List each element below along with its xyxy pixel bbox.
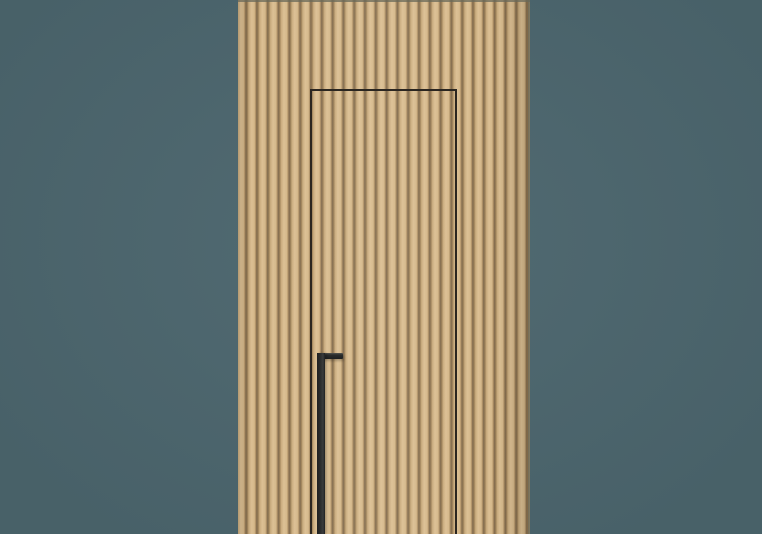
concealed-door-outline xyxy=(310,89,457,534)
door-handle-stem xyxy=(317,353,325,534)
render-scene xyxy=(0,0,762,534)
panel-top-edge xyxy=(238,0,530,2)
panel-right-edge xyxy=(528,0,530,534)
